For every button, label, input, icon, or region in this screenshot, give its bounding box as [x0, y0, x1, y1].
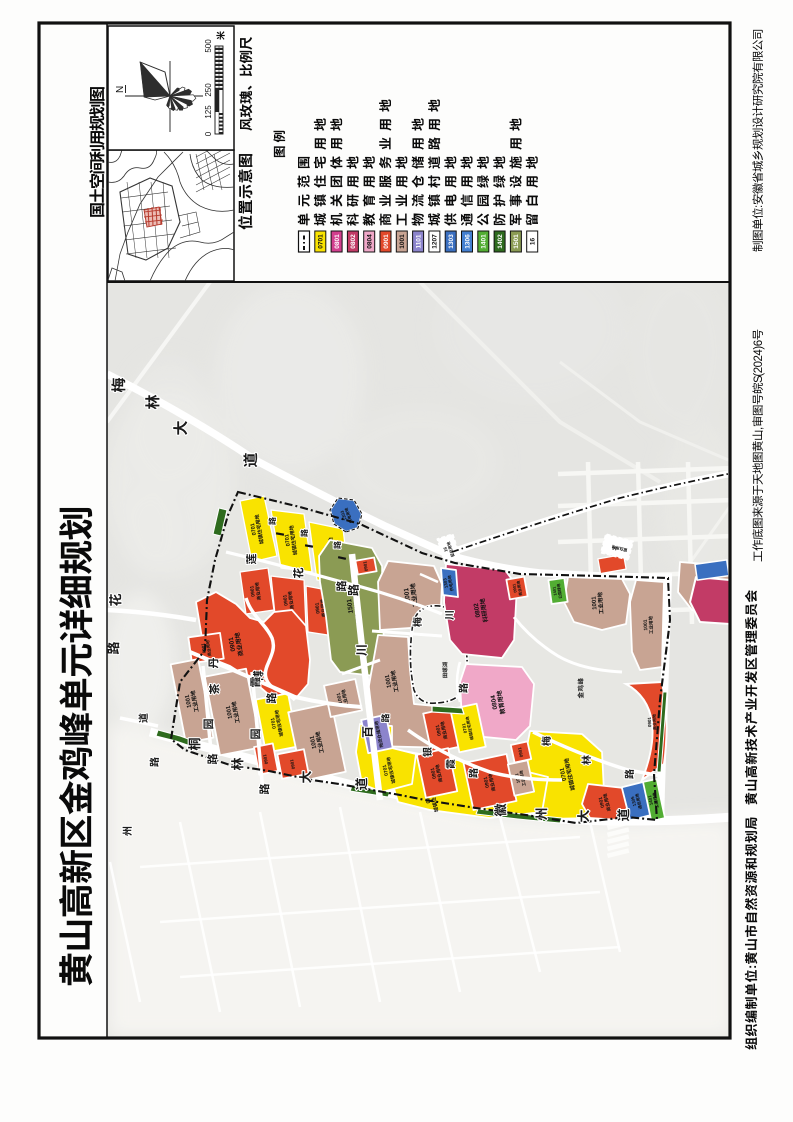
svg-text:0: 0	[753, 361, 765, 367]
svg-text:0802: 0802	[350, 234, 357, 249]
svg-text:0: 0	[643, 622, 649, 625]
svg-text:): )	[753, 346, 765, 350]
svg-text:1501: 1501	[513, 234, 520, 249]
svg-text:1303: 1303	[448, 234, 455, 249]
svg-text:N: N	[115, 86, 126, 93]
svg-text:,: ,	[753, 427, 765, 430]
svg-text:1402: 1402	[497, 234, 504, 249]
svg-text:1: 1	[643, 627, 649, 630]
svg-text:2: 2	[753, 355, 765, 361]
svg-text:(: (	[753, 373, 765, 377]
svg-text:0901: 0901	[383, 234, 390, 249]
svg-text:0: 0	[204, 131, 213, 136]
svg-text:1306: 1306	[464, 234, 471, 249]
svg-text:0801: 0801	[334, 234, 341, 249]
svg-text:250: 250	[204, 83, 213, 97]
svg-text:125: 125	[204, 105, 213, 119]
svg-text:0701: 0701	[318, 234, 325, 249]
svg-text:1001: 1001	[399, 234, 406, 249]
svg-text:1101: 1101	[415, 234, 422, 248]
svg-text:1207: 1207	[432, 234, 439, 249]
svg-text:1401: 1401	[481, 234, 488, 249]
svg-text:2: 2	[753, 367, 765, 373]
svg-text:16: 16	[530, 238, 537, 246]
svg-text:500: 500	[204, 39, 213, 53]
svg-text:6: 6	[753, 340, 765, 346]
svg-text:0804: 0804	[367, 234, 374, 249]
svg-text:0: 0	[643, 625, 649, 628]
svg-text::: :	[753, 205, 765, 208]
svg-text::: :	[744, 965, 759, 969]
svg-text:1: 1	[643, 619, 649, 622]
